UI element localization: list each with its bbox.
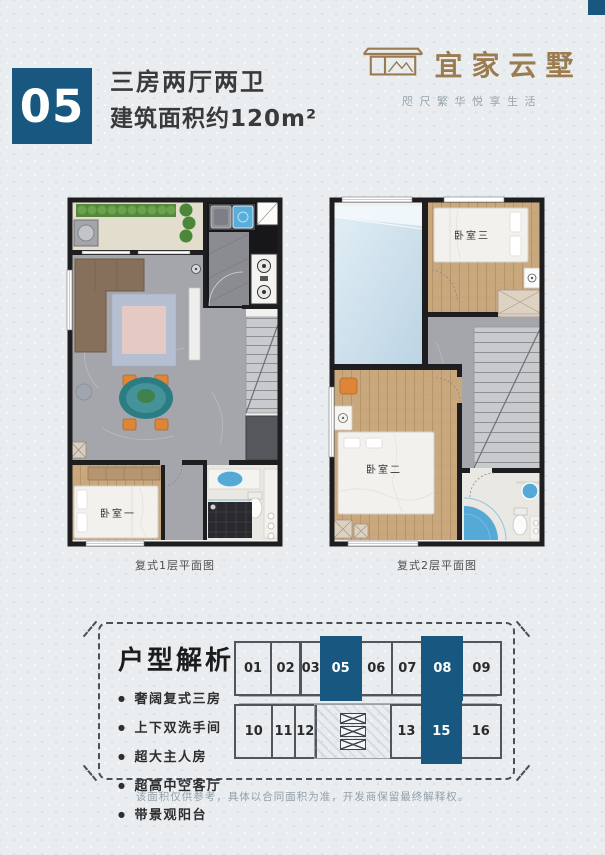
floorplan-level2-caption: 复式2层平面图 — [324, 557, 550, 573]
keyplan-unit-11: 11 — [271, 704, 296, 759]
bathroom2 — [462, 468, 542, 540]
page-subtitle: 建筑面积约120m² — [110, 99, 317, 133]
brand-block: 宜家云墅 咫尺繁华悦享生活 — [352, 44, 592, 109]
bathroom1 — [203, 465, 280, 540]
ceiling-fan-icon — [192, 265, 201, 274]
keyplan-row: 101112131516 — [234, 704, 502, 759]
corner-dash-icon — [83, 765, 97, 782]
keyplan-unit-09: 09 — [461, 641, 502, 696]
bedroom1: 卧室一 — [70, 465, 162, 540]
stairs-level1 — [246, 317, 280, 460]
bedroom2-label: 卧室二 — [366, 463, 402, 476]
corner-dash-icon — [83, 621, 97, 638]
page-title: 三房两厅两卫 — [110, 62, 266, 97]
kitchen-sink — [233, 206, 253, 228]
keyplan-unit-05: 05 — [320, 636, 362, 701]
void-space — [334, 206, 422, 364]
brand-name: 宜家云墅 — [434, 44, 582, 84]
corner-decoration — [588, 0, 605, 15]
tv-cabinet — [189, 288, 200, 360]
analysis-bullet: 带景观阳台 — [118, 801, 248, 830]
keyplan-unit-16: 16 — [460, 704, 502, 759]
bedroom3-label: 卧室三 — [454, 229, 490, 242]
brand-logo-icon — [361, 44, 425, 84]
keyplan-unit-01: 01 — [234, 641, 272, 696]
corner-dash-icon — [516, 621, 530, 638]
keyplan-core — [314, 704, 392, 759]
bathroom1-sink — [217, 471, 243, 487]
keyplan-unit-07: 07 — [391, 641, 424, 696]
analysis-bullets: 奢阔复式三房上下双洗手间超大主人房超高中空客厅带景观阳台 — [118, 685, 248, 830]
toilet2 — [513, 515, 527, 535]
poster-page: 05 三房两厅两卫 建筑面积约120m² 宜家云墅 咫尺繁华悦享生活 — [0, 0, 605, 855]
hallway-floor — [162, 460, 205, 540]
analysis-heading: 户型解析 — [118, 640, 248, 677]
floorplan-level1-caption: 复式1层平面图 — [62, 557, 288, 573]
corner-dash-icon — [516, 765, 530, 782]
keyplan-unit-10: 10 — [234, 704, 273, 759]
bedroom1-label: 卧室一 — [100, 507, 136, 520]
stove — [251, 254, 277, 304]
keyplan: 0102030506070809101112131516 — [234, 641, 502, 759]
elevator-icon — [340, 739, 366, 750]
brand-tagline: 咫尺繁华悦享生活 — [352, 93, 592, 109]
keyplan-row: 0102030506070809 — [234, 641, 502, 696]
washing-machine — [74, 220, 98, 246]
elevator-icon — [340, 726, 366, 737]
keyplan-unit-13: 13 — [390, 704, 423, 759]
elevator-icon — [340, 713, 366, 724]
analysis-bullet: 超大主人房 — [118, 743, 248, 772]
floorplan-level2: 卧室三 — [324, 192, 550, 552]
keyplan-unit-08: 08 — [421, 636, 463, 701]
bedroom2: 卧室二 — [332, 370, 457, 540]
keyplan-unit-06: 06 — [359, 641, 393, 696]
analysis-bullet: 上下双洗手间 — [118, 714, 248, 743]
analysis-panel: 户型解析 奢阔复式三房上下双洗手间超大主人房超高中空客厅带景观阳台 010203… — [98, 622, 515, 780]
stairs-level2 — [474, 327, 540, 470]
stool-orange — [340, 378, 357, 394]
stool — [76, 384, 92, 400]
unit-number-badge: 05 — [12, 68, 92, 144]
floorplan-level1: 卧室一 — [62, 192, 288, 552]
bathroom2-sink — [522, 483, 538, 499]
keyplan-unit-02: 02 — [270, 641, 302, 696]
keyplan-unit-15: 15 — [421, 699, 462, 764]
kitchen — [205, 200, 280, 308]
disclaimer-text: 该面积仅供参考，具体以合同面积为准，开发商保留最终解释权。 — [0, 789, 605, 804]
analysis-bullet: 奢阔复式三房 — [118, 685, 248, 714]
